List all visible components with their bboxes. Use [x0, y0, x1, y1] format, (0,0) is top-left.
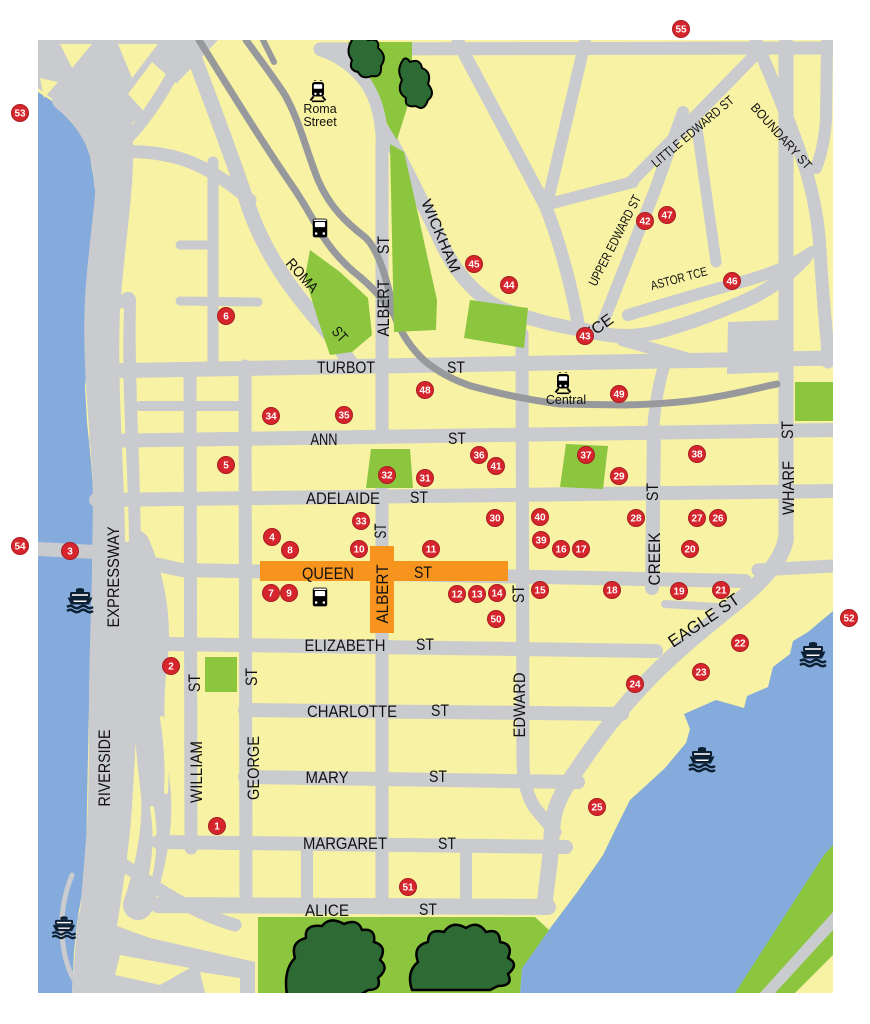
svg-text:18: 18 — [606, 586, 618, 597]
svg-text:53: 53 — [14, 109, 26, 120]
svg-text:13: 13 — [471, 590, 483, 601]
svg-text:42: 42 — [639, 217, 651, 228]
svg-text:ST: ST — [778, 421, 797, 439]
svg-text:ST: ST — [410, 488, 428, 507]
svg-text:32: 32 — [381, 471, 393, 482]
svg-text:38: 38 — [691, 450, 703, 461]
svg-text:33: 33 — [355, 517, 367, 528]
svg-text:ST: ST — [438, 834, 456, 853]
svg-text:ST: ST — [643, 483, 662, 501]
svg-text:23: 23 — [695, 668, 707, 679]
svg-text:19: 19 — [673, 587, 685, 598]
svg-text:ST: ST — [414, 563, 432, 582]
svg-text:39: 39 — [535, 536, 547, 547]
svg-text:16: 16 — [555, 545, 567, 556]
svg-text:4: 4 — [269, 533, 275, 544]
svg-text:31: 31 — [419, 474, 431, 485]
svg-text:49: 49 — [613, 390, 625, 401]
svg-text:GEORGE: GEORGE — [244, 736, 263, 800]
svg-text:41: 41 — [490, 462, 502, 473]
svg-text:21: 21 — [715, 586, 727, 597]
svg-text:3: 3 — [67, 547, 73, 558]
svg-text:TURBOT: TURBOT — [317, 358, 375, 377]
svg-text:26: 26 — [712, 514, 724, 525]
svg-text:WHARF: WHARF — [779, 461, 798, 515]
svg-text:ELIZABETH: ELIZABETH — [305, 636, 386, 655]
svg-text:8: 8 — [287, 546, 293, 557]
svg-text:MARGARET: MARGARET — [303, 834, 387, 853]
svg-text:51: 51 — [402, 883, 414, 894]
svg-text:10: 10 — [353, 545, 365, 556]
svg-text:ST: ST — [416, 635, 434, 654]
svg-text:15: 15 — [534, 586, 546, 597]
svg-text:ST: ST — [429, 767, 447, 786]
svg-text:55: 55 — [675, 25, 687, 36]
svg-text:48: 48 — [419, 386, 431, 397]
svg-text:CREEK: CREEK — [645, 532, 664, 586]
svg-text:ST: ST — [242, 668, 261, 686]
svg-text:43: 43 — [579, 332, 591, 343]
svg-text:ANN: ANN — [311, 430, 338, 449]
svg-text:40: 40 — [534, 513, 546, 524]
svg-text:50: 50 — [490, 615, 502, 626]
svg-text:14: 14 — [491, 589, 503, 600]
svg-text:EDWARD: EDWARD — [510, 673, 529, 738]
svg-text:WILLIAM: WILLIAM — [187, 741, 206, 803]
svg-text:11: 11 — [426, 545, 437, 556]
svg-text:ALICE: ALICE — [305, 901, 349, 920]
svg-text:ALBERT: ALBERT — [373, 565, 392, 624]
svg-text:ST: ST — [448, 429, 466, 448]
svg-text:12: 12 — [451, 590, 463, 601]
svg-text:Roma: Roma — [303, 102, 336, 116]
svg-text:25: 25 — [591, 803, 603, 814]
svg-text:ST: ST — [447, 358, 465, 377]
svg-text:22: 22 — [734, 639, 746, 650]
svg-text:ST: ST — [185, 674, 204, 692]
svg-text:30: 30 — [489, 514, 501, 525]
svg-text:ST: ST — [419, 900, 437, 919]
svg-text:ST: ST — [371, 524, 390, 539]
svg-text:ALBERT: ALBERT — [374, 280, 393, 337]
svg-text:CHARLOTTE: CHARLOTTE — [307, 702, 397, 721]
svg-text:28: 28 — [630, 514, 642, 525]
svg-text:EXPRESSWAY: EXPRESSWAY — [104, 527, 123, 628]
svg-text:54: 54 — [14, 542, 26, 553]
svg-text:34: 34 — [265, 412, 277, 423]
svg-text:ADELAIDE: ADELAIDE — [306, 489, 380, 508]
svg-text:QUEEN: QUEEN — [302, 564, 354, 583]
svg-text:7: 7 — [268, 589, 274, 600]
svg-text:Central: Central — [546, 393, 586, 407]
svg-text:44: 44 — [503, 281, 515, 292]
svg-text:ST: ST — [509, 585, 528, 603]
svg-text:Street: Street — [303, 115, 337, 129]
svg-text:17: 17 — [575, 545, 587, 556]
svg-text:45: 45 — [468, 260, 480, 271]
svg-text:9: 9 — [286, 589, 292, 600]
svg-text:1: 1 — [214, 822, 220, 833]
svg-text:ST: ST — [431, 701, 449, 720]
svg-text:46: 46 — [726, 277, 738, 288]
svg-text:29: 29 — [613, 472, 625, 483]
svg-text:52: 52 — [843, 614, 855, 625]
svg-text:20: 20 — [684, 545, 696, 556]
svg-text:24: 24 — [629, 680, 641, 691]
svg-text:RIVERSIDE: RIVERSIDE — [95, 730, 114, 807]
svg-text:47: 47 — [661, 211, 673, 222]
svg-text:2: 2 — [168, 662, 174, 673]
svg-text:ST: ST — [374, 236, 393, 254]
svg-text:35: 35 — [338, 411, 350, 422]
svg-text:27: 27 — [691, 514, 703, 525]
svg-text:6: 6 — [223, 312, 229, 323]
svg-text:36: 36 — [473, 451, 485, 462]
svg-text:37: 37 — [580, 451, 592, 462]
svg-text:5: 5 — [223, 461, 229, 472]
svg-text:MARY: MARY — [306, 768, 349, 787]
